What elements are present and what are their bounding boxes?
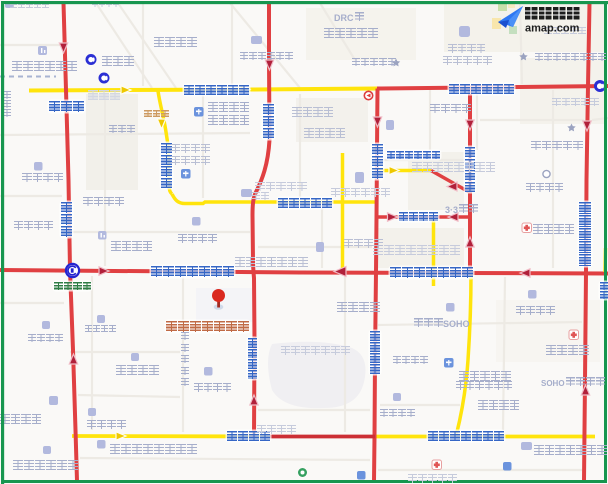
svg-text:amap.com: amap.com	[525, 23, 580, 35]
